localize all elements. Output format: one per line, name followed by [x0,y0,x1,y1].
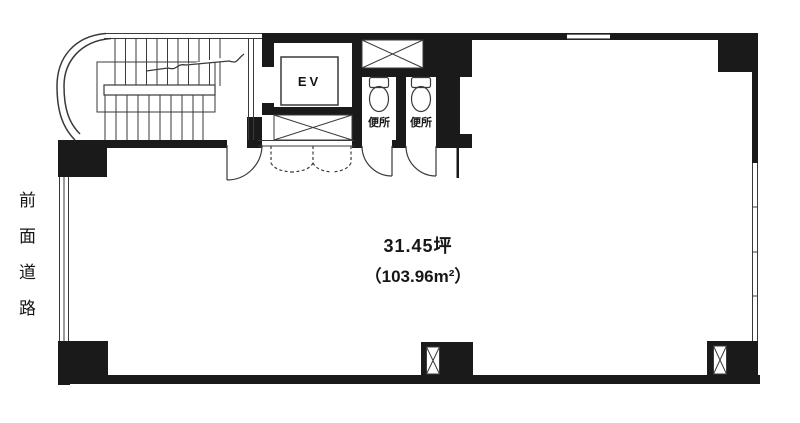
wall-ev-right [352,43,362,148]
elevator-door-opening [255,67,274,103]
duct-x-icon [362,40,423,68]
elevator-label: EV [281,57,338,105]
wall-hall-left [58,140,227,148]
wall-thin-partition [457,142,460,178]
entrance-door-dashed [258,141,354,173]
window-band-top [567,34,610,39]
toilet-label-1: 便所 [361,114,397,130]
main-area-size-sqm: （103.96m²） [318,262,518,287]
column-bottom-left [66,341,108,375]
entrance-threshold [258,141,354,147]
door-swing-stair [227,145,262,180]
floor-plan-drawing [0,0,800,423]
door-swing-toilet-1 [362,146,392,176]
wall-top [352,33,758,40]
wall-ev-bottom [274,107,352,115]
wall-right-upper [752,40,758,163]
front-road-label: 前面道路 [13,191,38,351]
wall-stub [447,134,472,142]
wall-left-lower [58,341,70,385]
stair-top-wall [104,34,262,39]
main-area-size-tsubo: 31.45坪 [318,232,518,258]
stair-treads-lower [105,95,203,140]
column-top-right [718,40,757,72]
toilet-room-1 [370,78,389,112]
elevator-duct-x-icon [274,115,352,140]
door-swing-toilet-2 [406,146,436,176]
toilet-label-2: 便所 [403,114,439,130]
wall-left-upper [58,140,70,177]
toilet-room-2 [412,78,431,112]
wall-toilet-divider [396,77,406,148]
pipe-shaft-x-icon-middle [427,347,440,374]
column-top-center [423,40,472,77]
wall-ev-top [262,33,362,43]
staircase [57,34,262,141]
stair-landing [104,85,215,95]
wall-pier-1 [257,140,262,148]
wall-bottom [58,375,760,384]
floor-plan: EV 便所 便所 31.45坪 （103.96m²） 前面道路 [0,0,800,423]
window-band-right [752,163,758,341]
toilet-bowl-icon [370,87,389,112]
toilet-bowl-icon [412,87,431,112]
window-band-left [60,177,69,341]
pipe-shaft-x-icon-right [714,346,727,374]
column-mid-left [70,147,107,177]
